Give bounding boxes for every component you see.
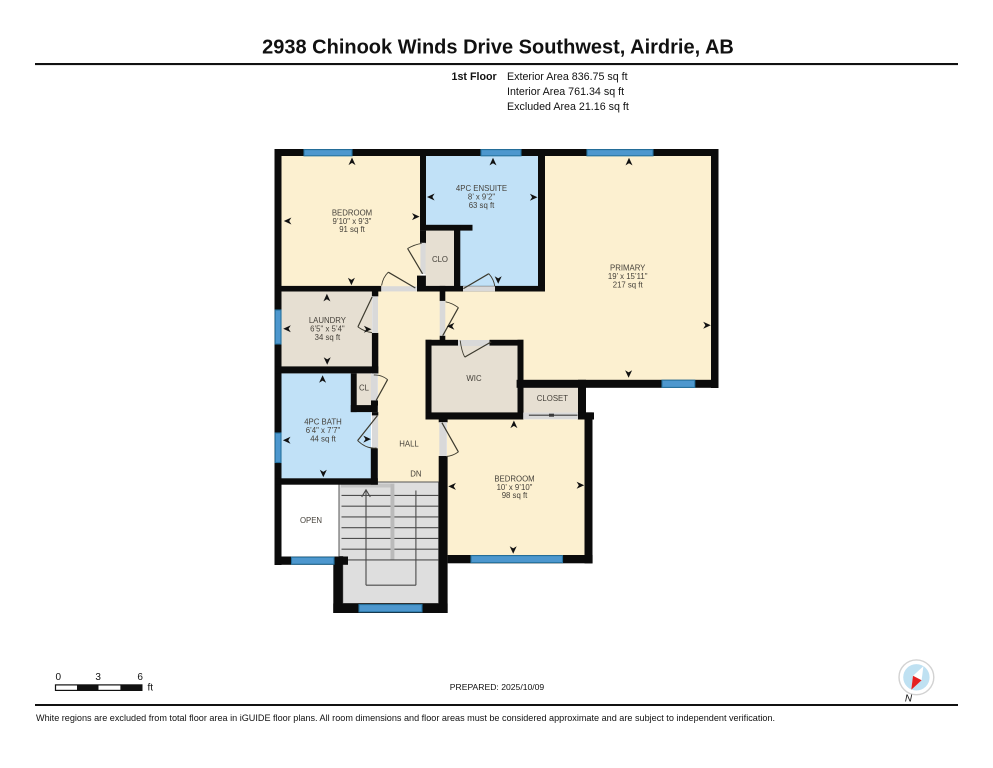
svg-text:98 sq ft: 98 sq ft: [502, 491, 528, 500]
svg-text:Exterior Area 836.75 sq ft: Exterior Area 836.75 sq ft: [507, 71, 628, 83]
svg-text:CLO: CLO: [432, 255, 448, 264]
svg-text:CL: CL: [359, 383, 370, 392]
svg-text:WIC: WIC: [466, 374, 482, 383]
svg-text:0: 0: [56, 672, 62, 683]
svg-text:91 sq ft: 91 sq ft: [339, 225, 365, 234]
svg-text:Interior Area 761.34 sq ft: Interior Area 761.34 sq ft: [507, 86, 624, 98]
svg-text:HALL: HALL: [399, 440, 419, 449]
svg-text:N: N: [905, 694, 913, 705]
svg-text:ft: ft: [148, 683, 154, 694]
svg-text:3: 3: [95, 672, 101, 683]
svg-text:63 sq ft: 63 sq ft: [469, 201, 495, 210]
svg-text:1st Floor: 1st Floor: [452, 71, 497, 83]
svg-text:OPEN: OPEN: [300, 516, 322, 525]
svg-text:6: 6: [137, 672, 143, 683]
svg-text:Excluded Area 21.16 sq ft: Excluded Area 21.16 sq ft: [507, 101, 629, 113]
svg-text:PREPARED: 2025/10/09: PREPARED: 2025/10/09: [450, 682, 545, 692]
svg-text:DN: DN: [410, 470, 421, 479]
svg-text:2938 Chinook Winds Drive South: 2938 Chinook Winds Drive Southwest, Aird…: [262, 37, 734, 59]
svg-text:44 sq ft: 44 sq ft: [310, 435, 336, 444]
svg-text:217 sq ft: 217 sq ft: [613, 280, 644, 289]
svg-text:CLOSET: CLOSET: [537, 394, 568, 403]
svg-text:White regions are excluded fro: White regions are excluded from total fl…: [36, 713, 775, 723]
svg-text:34 sq ft: 34 sq ft: [315, 333, 341, 342]
